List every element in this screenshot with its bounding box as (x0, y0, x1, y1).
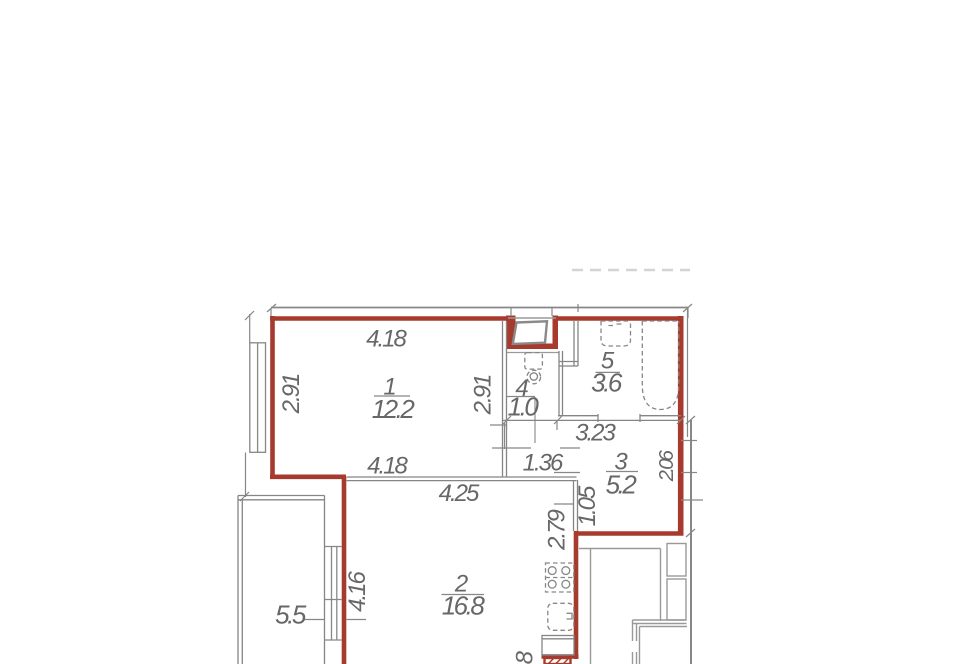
svg-text:1.36: 1.36 (523, 450, 564, 477)
svg-text:4.18: 4.18 (366, 326, 407, 353)
svg-text:2.91: 2.91 (470, 375, 497, 415)
svg-text:3.6: 3.6 (591, 368, 623, 398)
svg-text:12.2: 12.2 (372, 394, 416, 424)
svg-text:3.23: 3.23 (575, 420, 616, 447)
svg-text:4.16: 4.16 (344, 570, 371, 611)
svg-text:4.18: 4.18 (367, 453, 408, 480)
svg-text:2.91: 2.91 (278, 374, 305, 414)
svg-text:1.0: 1.0 (508, 392, 540, 422)
svg-text:2.79: 2.79 (544, 509, 571, 550)
svg-text:4.25: 4.25 (439, 480, 480, 507)
svg-text:2.06: 2.06 (656, 449, 678, 482)
svg-text:5.2: 5.2 (606, 470, 638, 500)
svg-text:5.5: 5.5 (275, 600, 307, 630)
svg-text:16.8: 16.8 (442, 591, 486, 621)
svg-text:1.05: 1.05 (574, 485, 601, 526)
